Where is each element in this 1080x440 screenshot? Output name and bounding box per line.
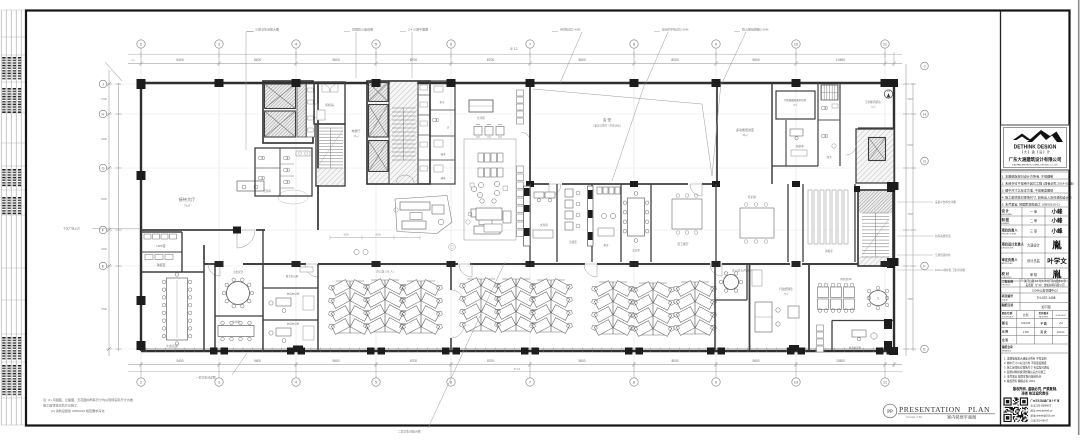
svg-text:注: (1) 平面图、立面图、天花图中所有尺寸均以现场实际尺: 注: (1) 平面图、立面图、天花图中所有尺寸均以现场实际尺寸为准, (43, 397, 134, 402)
svg-text:DESIGN DIR.: DESIGN DIR. (1002, 248, 1015, 250)
svg-text:15㎡: 15㎡ (353, 134, 359, 138)
svg-text:弱电: 弱电 (441, 176, 446, 180)
svg-text:洽谈室: 洽谈室 (232, 320, 240, 324)
svg-text:独立办公室: 独立办公室 (286, 274, 299, 278)
svg-text:行政储藏室兼复印区: 行政储藏室兼复印区 (784, 98, 807, 102)
svg-text:室内装修平面图: 室内装修平面图 (947, 414, 976, 421)
svg-text:(兼多功能厅 / 举办活动): (兼多功能厅 / 举办活动) (593, 124, 620, 128)
svg-text:DRAWN: DRAWN (1002, 222, 1010, 225)
svg-text:TITLE/SCALE: TITLE/SCALE (1002, 315, 1014, 318)
svg-text:TH-037-1408: TH-037-1408 (1037, 296, 1056, 300)
svg-text:4. 施工前须核对现场尺寸, 如有出入及时通知设计方: 4. 施工前须核对现场尺寸, 如有出入及时通知设计方 (1002, 194, 1072, 199)
svg-text:J: J (924, 64, 926, 69)
svg-text:小峰: 小峰 (1051, 216, 1063, 224)
svg-text:吊顶标高2.40M: 吊顶标高2.40M (560, 27, 581, 32)
svg-text:PAGE/REV: PAGE/REV (1039, 315, 1049, 318)
svg-text:电梯厅: 电梯厅 (351, 128, 360, 133)
svg-text:75㎡: 75㎡ (184, 203, 190, 208)
svg-text:7500: 7500 (907, 298, 913, 301)
svg-text:8700: 8700 (487, 359, 494, 363)
svg-text:资料库: 资料库 (825, 249, 833, 253)
svg-text:中层办公室: 中层办公室 (287, 292, 300, 296)
svg-text:3. 图中尺寸以标注为准, 不得量度图纸: 3. 图中尺寸以标注为准, 不得量度图纸 (1002, 187, 1054, 192)
svg-text:G: G (101, 166, 104, 171)
svg-text:9600: 9600 (332, 359, 339, 363)
svg-text:残卫: 残卫 (827, 155, 832, 159)
svg-text:图纸会审: 图纸会审 (1002, 345, 1013, 349)
svg-text:设计总监: 设计总监 (1027, 258, 1041, 263)
svg-text:9600: 9600 (752, 359, 759, 363)
svg-text:9400: 9400 (176, 359, 183, 363)
svg-text:5⁄ 12: 5⁄ 12 (510, 47, 517, 51)
svg-text:2700: 2700 (101, 97, 107, 101)
svg-text:消控室: 消控室 (156, 262, 165, 267)
svg-text:平 面: 平 面 (1040, 321, 1047, 325)
svg-text:会议室: 会议室 (632, 248, 640, 252)
svg-text:风机房: 风机房 (325, 102, 334, 107)
svg-text:8700: 8700 (410, 359, 417, 363)
svg-text:G: G (923, 159, 926, 164)
svg-text:1. 本图纸版权归设计方所有, 不得翻制: 1. 本图纸版权归设计方所有, 不得翻制 (1002, 173, 1054, 178)
svg-text:工程名称: 工程名称 (1002, 278, 1014, 283)
svg-text:2. 图中尺寸以标注为准 不得量度图纸: 2. 图中尺寸以标注为准 不得量度图纸 (1004, 361, 1047, 365)
svg-text:图纸目录: 图纸目录 (1002, 302, 1014, 307)
svg-text:页 次: 页 次 (1039, 330, 1047, 334)
svg-text:J: J (102, 82, 104, 87)
svg-text:项目负责人: 项目负责人 (1002, 227, 1019, 232)
svg-text:APPROVED: APPROVED (1002, 262, 1014, 265)
svg-text:10500: 10500 (836, 359, 845, 363)
svg-text:设备平台移位详图: 设备平台移位详图 (935, 200, 956, 204)
svg-text:一层卫生间详图: 一层卫生间详图 (196, 376, 216, 380)
svg-text:员工餐厅: 员工餐厅 (677, 242, 688, 246)
svg-text:版权所有, 盗版必究, 严禁复制,: 版权所有, 盗版必究, 严禁复制, (1013, 386, 1057, 391)
svg-text:空调管道排布: 空调管道排布 (935, 253, 951, 257)
svg-text:财务部 6P: 财务部 6P (840, 277, 852, 281)
svg-text:某门口第 17 号大 A号厂房4层办公室: 某门口第 17 号大 A号厂房4层办公室 (1024, 279, 1066, 283)
svg-text:二层卫生间放大图: 二层卫生间放大图 (398, 430, 421, 434)
svg-text:项目设计负责人: 项目设计负责人 (1002, 241, 1025, 246)
svg-text:PROJECT: PROJECT (1002, 285, 1012, 287)
svg-text:叶学文: 叶学文 (1047, 256, 1067, 265)
svg-text:大涵设计: 大涵设计 (1027, 242, 1041, 247)
svg-text:1: 1 (877, 297, 879, 301)
svg-text:SCALE 1:50: SCALE 1:50 (906, 415, 922, 419)
svg-text:2000: 2000 (375, 234, 381, 237)
svg-text:10500: 10500 (836, 58, 845, 62)
svg-text:9600: 9600 (332, 58, 340, 62)
svg-text:小会议室: 小会议室 (233, 270, 244, 274)
svg-text:三 审: 三 审 (1030, 228, 1037, 233)
svg-text:防火玻璃隔断2.40M: 防火玻璃隔断2.40M (742, 27, 769, 32)
svg-text:校 对: 校 对 (1002, 271, 1010, 276)
svg-text:会 堂: 会 堂 (603, 117, 612, 122)
svg-text:中层办公室: 中层办公室 (287, 322, 300, 326)
svg-text:增强防火墙说明: 增强防火墙说明 (352, 27, 373, 32)
svg-text:6. 版权所有 翻版必究 2014: 6. 版权所有 翻版必究 2014 (1004, 379, 1035, 383)
svg-text:4. 装修材料样板须经确认后方可施工: 4. 装修材料样板须经确认后方可施工 (1004, 370, 1046, 374)
svg-text:茶水: 茶水 (440, 100, 445, 104)
svg-text:9400: 9400 (254, 58, 262, 62)
svg-text:如下图: 如下图 (1041, 304, 1050, 309)
svg-text:比例: 比例 (1023, 313, 1029, 317)
svg-text:财务档案室: 财务档案室 (849, 346, 862, 350)
svg-text:9600: 9600 (752, 58, 760, 62)
svg-text:REMARKS: REMARKS (1002, 349, 1012, 352)
svg-text:110mm排水管,卫生间详图: 110mm排水管,卫生间详图 (935, 268, 965, 272)
svg-text:制 图: 制 图 (1002, 217, 1009, 222)
svg-text:施工前须核对后方可施工.: 施工前须核对后方可施工. (43, 403, 78, 408)
svg-text:8000: 8000 (671, 359, 678, 363)
svg-text:DATHAN ARCHITECTURAL DESIGN CO: DATHAN ARCHITECTURAL DESIGN CO.,LTD (1012, 163, 1058, 166)
svg-text:7500: 7500 (101, 307, 107, 311)
svg-text:5. 未尽事宜, 按国家规范施工 (GB50210-1): 5. 未尽事宜, 按国家规范施工 (GB50210-1) (1002, 201, 1060, 206)
svg-text:1500: 1500 (343, 234, 349, 237)
svg-text:二 审: 二 审 (1030, 218, 1037, 223)
svg-text:E: E (102, 264, 105, 269)
svg-text:6⁄ 12: 6⁄ 12 (514, 367, 521, 371)
svg-text:档案室: 档案室 (796, 144, 804, 148)
svg-text:(2) 消防设施依 GB50016 规范要求深化.: (2) 消防设施依 GB50016 规范要求深化. (51, 408, 105, 413)
svg-text:小峰: 小峰 (1051, 207, 1063, 215)
svg-text:1:150: 1:150 (1023, 331, 1030, 334)
svg-text:卫生间: 卫生间 (263, 189, 271, 193)
svg-text:办公区 (36 人): 办公区 (36 人) (376, 270, 394, 274)
svg-text:8000: 8000 (671, 58, 679, 62)
svg-text:7500: 7500 (907, 213, 913, 216)
svg-text:UPS室: UPS室 (156, 243, 165, 248)
svg-text:45㎡: 45㎡ (742, 133, 748, 137)
svg-text:胤: 胤 (1052, 239, 1062, 251)
svg-text:2014-08-07: 2014-08-07 (1055, 315, 1066, 317)
svg-text:共享区: 共享区 (477, 116, 485, 120)
svg-text:广东大涵建筑设计有限公司: 广东大涵建筑设计有限公司 (1009, 156, 1062, 163)
svg-text:+51: +51 (1059, 322, 1064, 325)
svg-text:10: 10 (794, 42, 799, 47)
svg-text:5. 未尽事宜 按国家现行规范执行: 5. 未尽事宜 按国家现行规范执行 (1004, 375, 1042, 379)
svg-text:A02-11: A02-11 (1057, 331, 1065, 334)
svg-text:项目编号: 项目编号 (1002, 293, 1014, 298)
svg-text:JOB No.: JOB No. (1002, 300, 1010, 302)
svg-text:强电: 强电 (441, 152, 446, 156)
svg-text:9600: 9600 (578, 359, 585, 363)
svg-text:图 名: 图 名 (1002, 321, 1008, 325)
svg-text:新风系统管道: 新风系统管道 (935, 234, 951, 238)
svg-text:图名/比例: 图名/比例 (1002, 311, 1013, 315)
svg-text:空调新风机房: 空调新风机房 (865, 100, 881, 104)
svg-text:5400: 5400 (907, 144, 913, 147)
svg-text:会 签: 会 签 (1002, 338, 1008, 342)
svg-text:3. 施工前须核对现场尺寸 有误及时通知: 3. 施工前须核对现场尺寸 有误及时通知 (1004, 366, 1050, 370)
svg-text:三层卫生间放大图: 三层卫生间放大图 (255, 27, 279, 32)
svg-text:文印室: 文印室 (540, 223, 548, 227)
svg-text:PRESENTATION PLAN: PRESENTATION PLAN (899, 405, 990, 414)
svg-text:（2046公寓管理中心）: （2046公寓管理中心） (1030, 287, 1060, 292)
svg-text:1. 本图版权属大涵设计所有 不得复制: 1. 本图版权属大涵设计所有 不得复制 (1004, 357, 1047, 361)
svg-text:窗台栏杆标高2.40M: 窗台栏杆标高2.40M (662, 27, 689, 32)
svg-text:H: H (923, 112, 926, 117)
svg-text:3200: 3200 (101, 247, 107, 251)
svg-text:E: E (923, 347, 926, 352)
svg-text:10: 10 (794, 380, 799, 385)
svg-text:培训室: 培训室 (748, 195, 757, 199)
svg-text:PP: PP (887, 409, 893, 415)
svg-text:5400: 5400 (101, 137, 107, 141)
svg-text:5220: 5220 (907, 98, 913, 101)
svg-text:5400: 5400 (101, 197, 107, 201)
svg-text:小峰: 小峰 (1051, 227, 1063, 235)
svg-text:机房: 机房 (603, 243, 609, 247)
svg-text:审定负责人: 审定负责人 (1002, 257, 1019, 262)
svg-text:DESIGNED: DESIGNED (1002, 214, 1013, 216)
svg-text:一 审: 一 审 (1030, 209, 1037, 214)
svg-text:8700: 8700 (487, 58, 495, 62)
svg-text:9400: 9400 (176, 58, 184, 62)
svg-text:接待大厅: 接待大厅 (179, 196, 196, 203)
svg-text:设 计: 设 计 (1002, 208, 1010, 213)
svg-text:PROJECT MGR.: PROJECT MGR. (1002, 234, 1018, 236)
svg-text:比 例: 比 例 (1002, 330, 1008, 334)
svg-text:8700: 8700 (410, 58, 418, 62)
svg-text:100x100: 100x100 (1021, 322, 1031, 325)
svg-text:9400: 9400 (254, 359, 261, 363)
svg-text:下沉广场上方: 下沉广场上方 (63, 227, 80, 231)
svg-text:N: N (887, 89, 889, 93)
svg-text:胤: 胤 (1052, 269, 1061, 280)
svg-text:2-4 三层平面图: 2-4 三层平面图 (408, 27, 428, 32)
svg-text:洽谈室: 洽谈室 (569, 240, 577, 244)
svg-text:【 大 】 涵 【 设 】 计: 【 大 】 涵 【 设 】 计 (1020, 149, 1050, 154)
svg-text:大会议室: 大会议室 (166, 343, 178, 348)
svg-text:美德斯（广州）金属材料有限公司: 美德斯（广州）金属材料有限公司 (1026, 283, 1065, 287)
svg-text:2. 未经许可不得用于其它工程 (违者必究 2014-01: 2. 未经许可不得用于其它工程 (违者必究 2014-01 版) (1002, 180, 1074, 185)
svg-text:9600: 9600 (578, 58, 586, 62)
svg-text:违者 依法追究责任: 违者 依法追究责任 (1021, 391, 1049, 396)
svg-text:审 核: 审 核 (1030, 272, 1038, 277)
svg-text:多功能培训室: 多功能培训室 (736, 127, 754, 132)
svg-text:行政经理室: 行政经理室 (779, 287, 793, 291)
svg-text:H: H (102, 112, 105, 117)
